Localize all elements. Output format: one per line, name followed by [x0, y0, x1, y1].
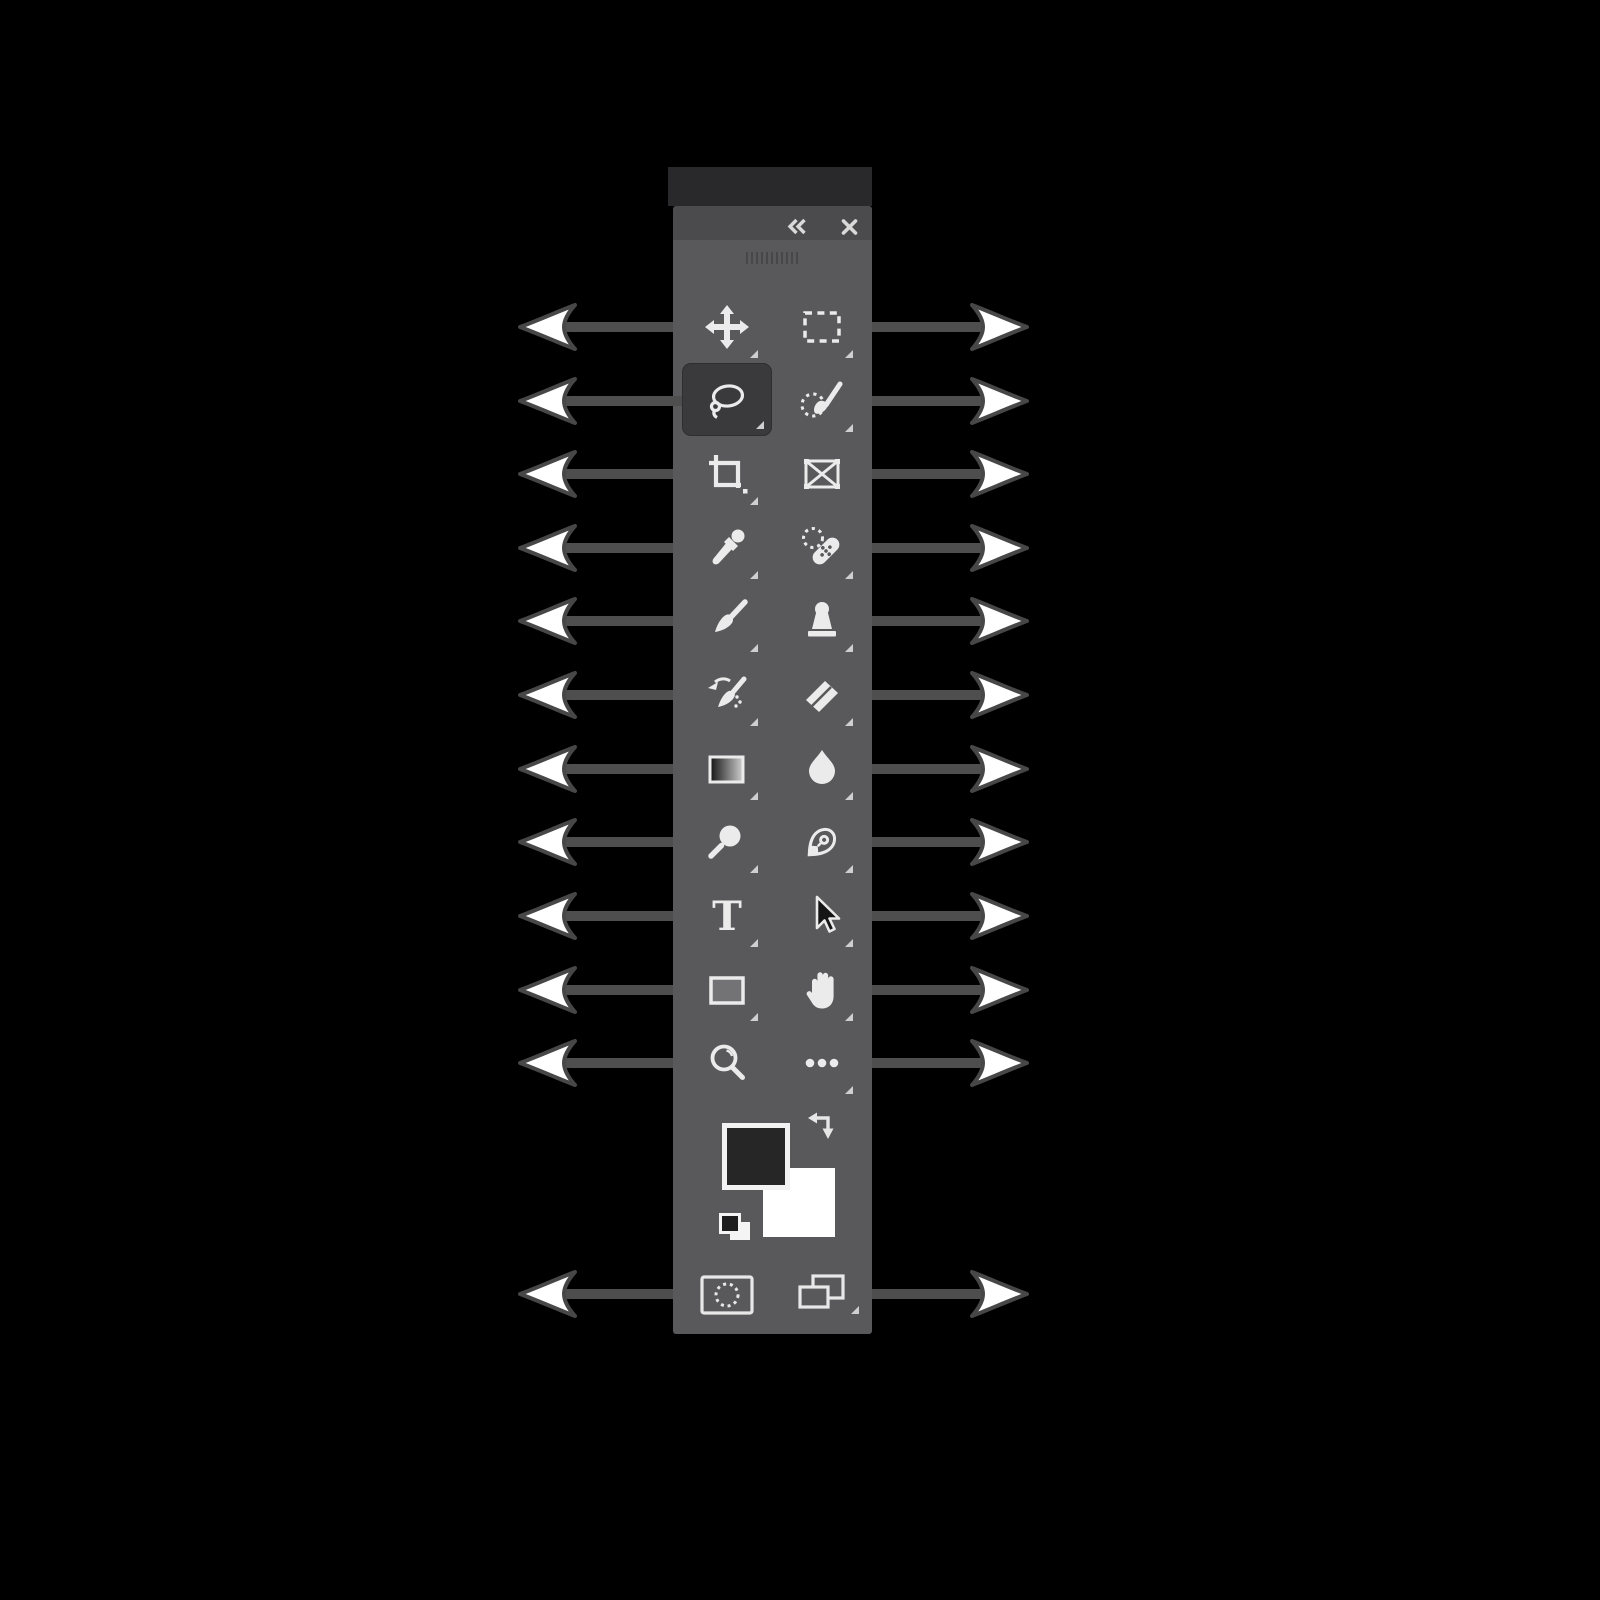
- annotation-arrow-right: [872, 965, 1030, 1015]
- tool-eraser[interactable]: [788, 661, 856, 729]
- flyout-indicator: [845, 1013, 853, 1021]
- annotation-arrow-right: [872, 1038, 1030, 1088]
- tool-pen[interactable]: [788, 808, 856, 876]
- tool-eyedropper[interactable]: [693, 514, 761, 582]
- tool-rectangular-marquee[interactable]: [788, 293, 856, 361]
- frame-icon: [798, 450, 846, 498]
- magnifier-icon: [703, 1039, 751, 1087]
- annotation-arrow-left: [517, 817, 673, 867]
- flyout-indicator: [845, 424, 853, 432]
- type-icon: T: [703, 892, 751, 940]
- default-colors-icon[interactable]: [719, 1213, 753, 1243]
- annotation-arrow-left: [517, 1269, 673, 1319]
- annotation-arrow-right: [872, 523, 1030, 573]
- annotation-arrow-left: [517, 302, 673, 352]
- eraser-icon: [798, 671, 846, 719]
- annotation-arrow-left: [517, 596, 673, 646]
- flyout-indicator: [851, 1306, 859, 1314]
- flyout-indicator: [750, 350, 758, 358]
- edit-toolbar-button[interactable]: [788, 1029, 856, 1097]
- svg-text:T: T: [712, 893, 742, 940]
- annotation-arrow-left: [517, 376, 686, 426]
- pen-icon: [798, 818, 846, 866]
- tool-spot-healing-brush[interactable]: [788, 514, 856, 582]
- quick-mask-icon: [700, 1275, 754, 1317]
- screen-mode-button[interactable]: [796, 1273, 848, 1313]
- swap-colors-icon[interactable]: [806, 1110, 840, 1142]
- tool-hand[interactable]: [788, 956, 856, 1024]
- tool-object-selection[interactable]: [788, 367, 856, 435]
- default-foreground-mini-swatch: [719, 1213, 741, 1234]
- marquee-icon: [798, 303, 846, 351]
- flyout-indicator: [845, 939, 853, 947]
- quick-mask-mode-button[interactable]: [700, 1275, 754, 1317]
- object-selection-icon: [798, 377, 846, 425]
- foreground-color-swatch[interactable]: [722, 1123, 790, 1190]
- diagram-canvas: T: [0, 0, 1600, 1600]
- tool-crop[interactable]: [693, 440, 761, 508]
- annotation-arrow-left: [517, 744, 673, 794]
- crop-icon: [703, 450, 751, 498]
- flyout-indicator: [750, 571, 758, 579]
- annotation-arrow-left: [517, 965, 673, 1015]
- annotation-arrow-left: [517, 891, 673, 941]
- tool-path-selection[interactable]: [788, 882, 856, 950]
- flyout-indicator: [845, 644, 853, 652]
- annotation-arrow-left: [517, 449, 673, 499]
- flyout-indicator: [845, 718, 853, 726]
- annotation-arrow-right: [872, 596, 1030, 646]
- clone-stamp-icon: [798, 597, 846, 645]
- tool-dodge[interactable]: [693, 808, 761, 876]
- screen-mode-icon: [796, 1273, 848, 1313]
- annotation-arrow-right: [872, 449, 1030, 499]
- annotation-arrow-right: [872, 302, 1030, 352]
- tool-lasso[interactable]: [682, 363, 772, 436]
- hand-icon: [798, 966, 846, 1014]
- flyout-indicator: [750, 792, 758, 800]
- tool-move[interactable]: [693, 293, 761, 361]
- flyout-indicator: [750, 497, 758, 505]
- flyout-indicator: [750, 865, 758, 873]
- dock-header: [668, 167, 872, 206]
- annotation-arrow-left: [517, 1038, 673, 1088]
- annotation-arrow-left: [517, 670, 673, 720]
- annotation-arrow-right: [872, 376, 1030, 426]
- healing-brush-icon: [798, 524, 846, 572]
- tool-clone-stamp[interactable]: [788, 587, 856, 655]
- dodge-icon: [703, 818, 751, 866]
- flyout-indicator: [845, 792, 853, 800]
- tool-blur[interactable]: [788, 735, 856, 803]
- eyedropper-icon: [703, 524, 751, 572]
- flyout-indicator: [750, 1013, 758, 1021]
- history-brush-icon: [703, 671, 751, 719]
- blur-droplet-icon: [798, 745, 846, 793]
- move-icon: [703, 303, 751, 351]
- close-icon[interactable]: [841, 219, 858, 235]
- tool-type[interactable]: T: [693, 882, 761, 950]
- flyout-indicator: [845, 865, 853, 873]
- annotation-arrow-right: [872, 744, 1030, 794]
- path-selection-cursor-icon: [798, 892, 846, 940]
- flyout-indicator: [750, 644, 758, 652]
- annotation-arrow-right: [872, 1269, 1030, 1319]
- brush-icon: [703, 597, 751, 645]
- annotation-arrow-right: [872, 817, 1030, 867]
- panel-drag-grip-icon[interactable]: [746, 252, 799, 264]
- tool-history-brush[interactable]: [693, 661, 761, 729]
- flyout-indicator: [756, 421, 764, 429]
- flyout-indicator: [845, 1086, 853, 1094]
- flyout-indicator: [750, 718, 758, 726]
- annotation-arrow-right: [872, 670, 1030, 720]
- flyout-indicator: [845, 571, 853, 579]
- annotation-arrow-left: [517, 523, 673, 573]
- flyout-indicator: [750, 939, 758, 947]
- tool-gradient[interactable]: [693, 735, 761, 803]
- tool-brush[interactable]: [693, 587, 761, 655]
- gradient-icon: [703, 745, 751, 793]
- ellipsis-icon: [798, 1039, 846, 1087]
- annotation-arrow-right: [872, 891, 1030, 941]
- collapse-double-chevron-icon[interactable]: [787, 218, 807, 235]
- tool-frame[interactable]: [788, 440, 856, 508]
- lasso-icon: [703, 376, 751, 424]
- flyout-indicator: [845, 350, 853, 358]
- rectangle-shape-icon: [703, 966, 751, 1014]
- tool-zoom[interactable]: [693, 1029, 761, 1097]
- tool-rectangle-shape[interactable]: [693, 956, 761, 1024]
